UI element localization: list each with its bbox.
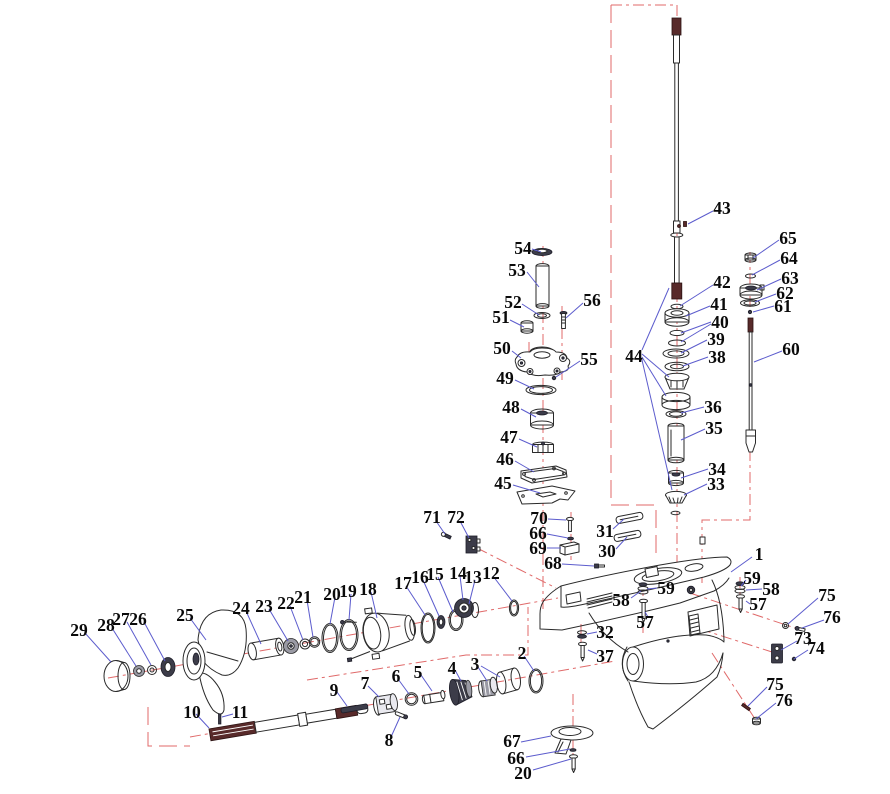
part-label-65: 65: [779, 228, 797, 248]
part-label-76: 76: [823, 607, 841, 627]
part-label-42: 42: [713, 272, 731, 292]
leader-line: [548, 519, 566, 520]
driveshaft: [671, 18, 687, 299]
part-label-47: 47: [500, 427, 518, 447]
part-label-19: 19: [339, 581, 357, 601]
part-label-27: 27: [112, 609, 130, 629]
o-ring-12: [509, 600, 518, 616]
ring-22: [300, 639, 310, 649]
propeller-25: [183, 610, 246, 714]
shift-cam-31: [616, 512, 644, 524]
gasket-49: [526, 385, 556, 394]
part-label-49: 49: [496, 368, 514, 388]
leader-line: [788, 598, 818, 624]
mount-block-69: [560, 542, 579, 555]
part-label-36: 36: [704, 397, 722, 417]
bearing-3: [477, 677, 498, 697]
shift-rod-60: [746, 318, 756, 452]
part-label-31: 31: [596, 521, 614, 541]
part-label-68: 68: [544, 553, 562, 573]
washer-39: [663, 349, 689, 358]
leader-line: [754, 351, 782, 362]
part-label-75: 75: [818, 585, 836, 605]
part-label-35: 35: [705, 418, 723, 438]
leader-line: [566, 303, 583, 318]
leader-line: [746, 589, 762, 590]
part-label-25: 25: [176, 605, 194, 625]
part-label-2: 2: [518, 643, 527, 663]
housing-fasteners: [441, 512, 806, 773]
washer-66-top: [568, 537, 574, 540]
part-label-54: 54: [514, 238, 532, 258]
shift-cam-30: [614, 530, 642, 542]
part-label-3: 3: [471, 654, 480, 674]
leader-line: [683, 357, 708, 366]
leader-line: [515, 380, 534, 389]
part-label-10: 10: [183, 702, 201, 722]
pin-11: [219, 714, 221, 724]
part-label-76: 76: [775, 690, 793, 710]
leader-line: [421, 675, 432, 691]
leader-line: [688, 211, 713, 224]
part-label-46: 46: [496, 449, 514, 469]
part-label-58: 58: [612, 590, 630, 610]
part-label-51: 51: [492, 307, 510, 327]
part-label-48: 48: [502, 397, 520, 417]
plunger-5: [421, 690, 445, 704]
leader-line: [521, 736, 551, 742]
ring-75-upper: [783, 623, 789, 629]
seal-26: [161, 658, 175, 677]
leader-line: [547, 534, 568, 538]
bearing-cup-44: [662, 392, 690, 409]
bearing-13-14: [455, 599, 479, 618]
pinion-gear-33: [666, 491, 687, 514]
o-ring-20: [322, 624, 338, 653]
screw-56: [560, 311, 567, 328]
part-label-4: 4: [448, 658, 457, 678]
part-label-21: 21: [294, 587, 312, 607]
leader-line: [753, 240, 779, 258]
leader-line: [681, 429, 705, 440]
exploded-parts-diagram: 5453525651505549484746454342414039384436…: [0, 0, 890, 794]
part-label-18: 18: [359, 579, 377, 599]
part-label-7: 7: [361, 673, 370, 693]
o-ring-2: [529, 669, 543, 693]
part-label-17: 17: [394, 573, 412, 593]
part-label-12: 12: [482, 563, 500, 583]
taper-bearing-cone-44: [665, 373, 689, 389]
leader-line: [562, 564, 594, 566]
o-ring-6: [405, 693, 418, 706]
leader-line: [753, 306, 774, 312]
part-label-55: 55: [580, 349, 598, 369]
leader-line: [680, 285, 713, 306]
part-label-9: 9: [330, 680, 339, 700]
part-label-69: 69: [529, 538, 547, 558]
bearing-carrier-18: [339, 602, 419, 663]
part-label-37: 37: [596, 646, 614, 666]
leader-line: [533, 759, 571, 770]
part-label-5: 5: [414, 662, 423, 682]
woodruff-key-43: [684, 222, 687, 227]
part-label-13: 13: [464, 567, 482, 587]
part-label-57: 57: [636, 612, 654, 632]
o-ring-17: [421, 613, 435, 643]
part-label-59: 59: [743, 568, 761, 588]
part-label-72: 72: [447, 507, 465, 527]
part-label-1: 1: [755, 544, 764, 564]
screw-71: [441, 532, 452, 540]
washer-66-bottom: [570, 749, 576, 752]
leader-line: [85, 633, 111, 662]
bearing-cup: [495, 667, 522, 694]
leader-line: [756, 703, 776, 719]
leader-line: [681, 469, 708, 478]
part-label-20: 20: [514, 763, 532, 783]
leader-line: [144, 622, 165, 661]
leader-line: [684, 484, 707, 495]
leader-line: [794, 650, 808, 659]
leader-line: [681, 407, 704, 413]
nut-51: [521, 321, 533, 333]
part-label-8: 8: [385, 730, 394, 750]
sleeve-35: [668, 423, 684, 463]
part-label-50: 50: [493, 338, 511, 358]
bolt-37-washer-32: [578, 631, 587, 661]
leader-line: [748, 687, 767, 706]
anode-73: [772, 644, 783, 663]
nut-28: [134, 666, 145, 677]
pin-8: [395, 711, 409, 720]
part-label-56: 56: [583, 290, 601, 310]
part-label-59: 59: [657, 578, 675, 598]
part-label-24: 24: [232, 598, 250, 618]
leader-line: [337, 692, 347, 706]
leader-line: [802, 620, 824, 628]
part-label-23: 23: [255, 596, 273, 616]
part-label-38: 38: [708, 347, 726, 367]
pin-55: [552, 376, 556, 380]
part-label-26: 26: [129, 609, 147, 629]
bracket-72: [466, 536, 480, 553]
part-label-61: 61: [774, 296, 792, 316]
part-label-74: 74: [807, 638, 825, 658]
ring-21: [309, 637, 319, 647]
leader-line: [686, 306, 710, 316]
diagram-canvas: 5453525651505549484746454342414039384436…: [0, 0, 890, 794]
part-label-43: 43: [713, 198, 731, 218]
part-label-22: 22: [277, 593, 295, 613]
dowel-pin: [700, 537, 705, 544]
cup-48: [531, 409, 554, 429]
bushing-16: [437, 616, 445, 629]
part-label-44: 44: [625, 346, 643, 366]
part-label-57: 57: [749, 594, 767, 614]
part-label-15: 15: [426, 564, 444, 584]
part-label-45: 45: [494, 473, 512, 493]
bolt-70: [567, 517, 574, 531]
pin-61: [748, 310, 751, 313]
part-label-6: 6: [392, 666, 401, 686]
part-label-33: 33: [707, 474, 725, 494]
part-label-39: 39: [707, 329, 725, 349]
part-label-71: 71: [423, 507, 441, 527]
screw-68: [595, 564, 605, 568]
driveshaft-bearing-stack: [662, 304, 690, 514]
part-label-30: 30: [598, 541, 616, 561]
part-label-11: 11: [232, 702, 249, 722]
washer-23: [284, 639, 299, 654]
part-label-64: 64: [780, 248, 798, 268]
part-label-32: 32: [596, 622, 614, 642]
clutch-7: [372, 693, 399, 716]
part-label-60: 60: [782, 339, 800, 359]
part-label-29: 29: [70, 620, 88, 640]
bolt-20-bottom: [570, 755, 578, 773]
shift-rod-assembly: [740, 253, 764, 452]
forward-gear-4: [448, 677, 474, 706]
leader-line: [752, 260, 780, 275]
key-block-47: [533, 442, 554, 453]
spacer-24: [247, 638, 285, 661]
connector-63: [740, 284, 764, 299]
gearcase-housing: [540, 537, 731, 729]
ring-36: [666, 411, 686, 418]
leader-line: [368, 686, 379, 697]
part-label-41: 41: [710, 294, 728, 314]
part-label-53: 53: [508, 260, 526, 280]
water-pump-assembly: [515, 248, 575, 504]
